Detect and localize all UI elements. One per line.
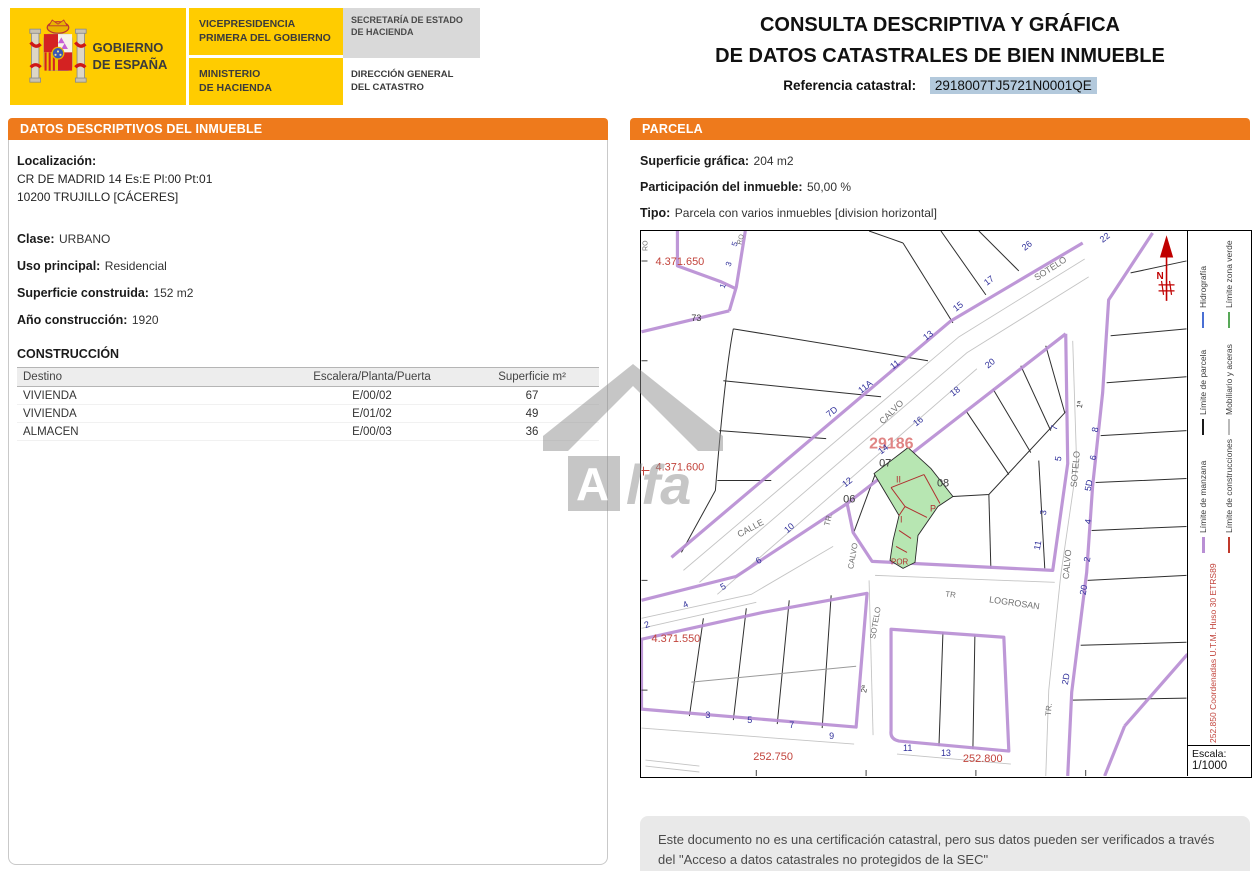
map-svg: 4.371.6504.371.6004.371.550252.750252.80…: [641, 231, 1187, 776]
spain-coat-of-arms-icon: [29, 17, 87, 96]
secretaria-text: SECRETARÍA DE ESTADO DE HACIENDA: [343, 8, 480, 58]
vicepresidencia-text: VICEPRESIDENCIA PRIMERA DEL GOBIERNO: [189, 8, 343, 55]
construccion-header-row: Destino Escalera/Planta/Puerta Superfici…: [17, 368, 599, 387]
localizacion-line2: 10200 TRUJILLO [CÁCERES]: [17, 190, 599, 204]
map-label: 4.371.650: [655, 256, 704, 268]
map-label: 26: [1020, 239, 1034, 253]
parcela-header: PARCELA: [630, 118, 1250, 140]
certification-note: Este documento no es una certificación c…: [640, 816, 1250, 871]
map-label: LOGROSAN: [989, 594, 1041, 611]
gobierno-text: GOBIERNO DE ESPAÑA: [93, 40, 168, 73]
anio-value: 1920: [132, 313, 159, 327]
escala-label: Escala:: [1192, 748, 1246, 760]
clase-value: URBANO: [59, 232, 110, 246]
map-label: 5: [1053, 455, 1064, 462]
ministerio-block: VICEPRESIDENCIA PRIMERA DEL GOBIERNO MIN…: [189, 8, 343, 105]
map-label: TR: [945, 589, 957, 599]
legend-item: Límite de manzana: [1198, 435, 1208, 553]
col-superficie: Superficie m²: [465, 368, 599, 387]
map-label: 4.371.600: [655, 462, 704, 474]
cell-destino: VIVIENDA: [17, 405, 279, 423]
map-label: 5: [747, 715, 752, 725]
cell-destino: ALMACEN: [17, 423, 279, 441]
ministerio-text: MINISTERIO DE HACIENDA: [189, 58, 343, 105]
parcela-panel: PARCELA Superficie gráfica: 204 m2 Parti…: [630, 118, 1250, 871]
zona-verde-swatch: [1228, 312, 1230, 328]
legend-item: Límite de parcela: [1198, 328, 1208, 435]
map-label: SOTELO: [868, 606, 882, 639]
map-label: 1ª: [1075, 400, 1085, 409]
col-destino: Destino: [17, 368, 279, 387]
legend-label: Mobiliario y aceras: [1224, 344, 1234, 415]
map-label: 13: [941, 748, 951, 758]
map-label: 2D: [1060, 672, 1072, 686]
map-label: 13: [921, 328, 935, 342]
legend-label: Límite de construcciones: [1224, 439, 1234, 533]
map-label: POR: [891, 557, 909, 566]
datos-descriptivos-body: Localización: CR DE MADRID 14 Es:E Pl:00…: [8, 140, 608, 865]
map-label: 3: [724, 260, 734, 268]
map-label: RO: [642, 240, 649, 251]
map-label: 22: [1098, 231, 1112, 245]
map-label: N: [1157, 271, 1164, 282]
map-label: 11: [903, 743, 912, 753]
map-label: 2ª: [859, 685, 869, 694]
map-label: 3: [705, 710, 710, 720]
map-legend: Límite de manzana Límite de construccion…: [1187, 231, 1250, 776]
map-canvas: 4.371.6504.371.6004.371.550252.750252.80…: [641, 231, 1187, 776]
title-line-1: CONSULTA DESCRIPTIVA Y GRÁFICA: [630, 10, 1250, 41]
legend-label: Hidrografía: [1198, 266, 1208, 308]
referencia-value: 2918007TJ5721N0001QE: [930, 77, 1097, 94]
map-label: 29186: [869, 436, 914, 453]
map-coordinate-cross: [642, 467, 650, 476]
escala-value: 1/1000: [1192, 760, 1246, 772]
datos-descriptivos-header: DATOS DESCRIPTIVOS DEL INMUEBLE: [8, 118, 608, 140]
map-label: 7: [1049, 424, 1060, 431]
legend-label: Límite de parcela: [1198, 350, 1208, 415]
map-label: 17: [982, 273, 996, 287]
referencia-label: Referencia catastral:: [783, 78, 916, 93]
map-label: 252.750: [753, 751, 793, 763]
datos-descriptivos-panel: DATOS DESCRIPTIVOS DEL INMUEBLE Localiza…: [8, 118, 608, 865]
tipo-value: Parcela con varios inmuebles [division h…: [675, 206, 937, 220]
scale-box: Escala: 1/1000: [1188, 745, 1250, 776]
cell-superficie: 49: [465, 405, 599, 423]
map-label: 10: [782, 521, 796, 535]
map-label: P: [930, 503, 936, 513]
superficie-grafica-value: 204 m2: [754, 154, 794, 168]
aceras-swatch: [1228, 419, 1230, 435]
map-label: 08: [937, 478, 949, 490]
map-label: SOTELO: [1069, 451, 1082, 488]
col-escalera: Escalera/Planta/Puerta: [279, 368, 465, 387]
legend-items: Límite de manzana Límite de construccion…: [1190, 233, 1248, 553]
map-label: 4: [681, 599, 690, 610]
map-label: 11: [888, 358, 902, 372]
participacion-value: 50,00 %: [807, 180, 851, 194]
uso-label: Uso principal:: [17, 259, 100, 273]
superficie-grafica-label: Superficie gráfica:: [640, 154, 749, 168]
cadastral-map: 4.371.6504.371.6004.371.550252.750252.80…: [640, 230, 1252, 778]
map-label: II: [896, 475, 901, 485]
legend-item: Hidrografía: [1198, 236, 1208, 328]
superficie-construida-label: Superficie construida:: [17, 286, 149, 300]
tipo-label: Tipo:: [640, 206, 670, 220]
north-arrow-icon: [1159, 237, 1175, 301]
map-label: 5D: [1083, 478, 1095, 492]
title-line-2: DE DATOS CATASTRALES DE BIEN INMUEBLE: [630, 41, 1250, 72]
cell-escalera: E/00/03: [279, 423, 465, 441]
utm-coordinates-note: 252.850 Coordenadas U.T.M. Huso 30 ETRS8…: [1208, 551, 1232, 743]
map-label: CALVO: [1061, 549, 1074, 580]
legend-item: Mobiliario y aceras: [1224, 328, 1234, 435]
map-label: 3: [1038, 509, 1049, 516]
secretaria-block: SECRETARÍA DE ESTADO DE HACIENDA DIRECCI…: [343, 8, 480, 105]
map-label: TR.: [1044, 703, 1054, 717]
cell-escalera: E/01/02: [279, 405, 465, 423]
cell-superficie: 36: [465, 423, 599, 441]
table-row: VIVIENDA E/00/02 67: [17, 387, 599, 405]
map-label: CALVO: [846, 542, 859, 570]
map-label: CALLE: [736, 517, 766, 539]
table-row: ALMACEN E/00/03 36: [17, 423, 599, 441]
cell-destino: VIVIENDA: [17, 387, 279, 405]
cell-escalera: E/00/02: [279, 387, 465, 405]
map-label: 20: [1078, 584, 1090, 596]
map-label: 2: [643, 619, 651, 630]
map-label: TR.: [822, 512, 834, 527]
legend-label: Límite de manzana: [1198, 461, 1208, 533]
map-label: I: [900, 514, 903, 524]
map-label: 11A: [856, 378, 874, 395]
referencia-catastral-row: Referencia catastral: 2918007TJ5721N0001…: [630, 78, 1250, 93]
cell-superficie: 67: [465, 387, 599, 405]
map-label: 06: [843, 494, 855, 506]
map-ticks: [642, 261, 1086, 776]
construccion-table: Destino Escalera/Planta/Puerta Superfici…: [17, 367, 599, 441]
construccion-title: CONSTRUCCIÓN: [17, 347, 599, 361]
map-aceras-lines: [642, 259, 1089, 776]
map-label: 4.371.550: [651, 633, 700, 645]
map-label: 2: [1082, 556, 1093, 563]
participacion-label: Participación del inmueble:: [640, 180, 803, 194]
superficie-construida-value: 152 m2: [153, 286, 193, 300]
map-label: 11: [1032, 540, 1043, 551]
legend-label: Límite zona verde: [1224, 240, 1234, 308]
manzana-swatch: [1202, 537, 1205, 553]
table-row: VIVIENDA E/01/02 49: [17, 405, 599, 423]
map-label: 16: [911, 414, 925, 428]
map-label: 07: [879, 458, 891, 470]
map-label: 252.800: [963, 753, 1003, 765]
clase-label: Clase:: [17, 232, 55, 246]
map-label: 20: [983, 356, 997, 370]
legend-item: Límite de construcciones: [1224, 435, 1234, 553]
parcela-swatch: [1202, 419, 1204, 435]
map-label: 73: [691, 313, 701, 323]
direccion-text: DIRECCIÓN GENERAL DEL CATASTRO: [343, 58, 480, 105]
uso-value: Residencial: [105, 259, 167, 273]
map-label: 15: [951, 299, 965, 313]
localizacion-label: Localización:: [17, 154, 599, 168]
parcela-info: Superficie gráfica: 204 m2 Participación…: [630, 140, 1250, 222]
hidrografia-swatch: [1202, 312, 1204, 328]
government-header: GOBIERNO DE ESPAÑA VICEPRESIDENCIA PRIME…: [10, 8, 480, 105]
map-label: 7: [789, 720, 794, 730]
legend-item: Límite zona verde: [1224, 236, 1234, 328]
page: GOBIERNO DE ESPAÑA VICEPRESIDENCIA PRIME…: [0, 0, 1258, 871]
map-label: 9: [829, 731, 834, 741]
document-title: CONSULTA DESCRIPTIVA Y GRÁFICA DE DATOS …: [630, 10, 1250, 93]
localizacion-line1: CR DE MADRID 14 Es:E Pl:00 Pt:01: [17, 172, 599, 186]
gobierno-logo-block: GOBIERNO DE ESPAÑA: [10, 8, 186, 105]
anio-label: Año construcción:: [17, 313, 127, 327]
map-label: 18: [948, 384, 962, 398]
